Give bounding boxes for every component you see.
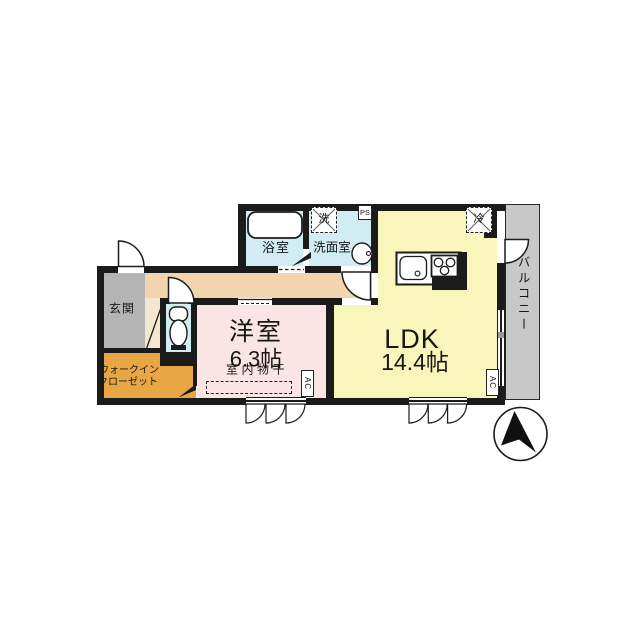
window-arc [428, 404, 447, 423]
window-arc [409, 404, 428, 423]
wall [144, 266, 246, 273]
bathroom-area [246, 211, 303, 266]
wall [306, 398, 409, 405]
wall [371, 204, 378, 273]
wall [272, 298, 342, 305]
balcony-label: バルコニー [515, 255, 528, 333]
walk-in-closet-label-2: クローゼット [98, 378, 158, 389]
hallway-area [145, 273, 372, 298]
entrance-step-area [145, 298, 160, 352]
wall [326, 305, 334, 398]
window-western-room [246, 397, 306, 405]
wall [193, 366, 197, 386]
floor-plan: PS AC AC [0, 0, 640, 640]
fridge-label: 冷 [474, 214, 485, 226]
window-arc [448, 404, 467, 423]
air-con-label: AC [488, 376, 497, 389]
window-arc [286, 404, 305, 423]
balcony-door-opening [497, 238, 505, 263]
indoor-drying-box [206, 381, 292, 394]
wall [238, 204, 246, 273]
walk-in-closet-label-1: ウォークイン [99, 366, 159, 377]
wall [97, 348, 162, 353]
ldk-size-label: 14.4帖 [381, 350, 449, 374]
pipe-space-box: PS [358, 205, 372, 220]
wall-slot [498, 211, 505, 238]
wall [97, 398, 246, 405]
wall [160, 352, 197, 366]
washer-label: 洗 [319, 214, 330, 226]
wall [371, 298, 378, 305]
indoor-drying-label: 室内物干 [226, 364, 288, 377]
window-ldk [409, 397, 467, 405]
western-room-label: 洋室 [229, 319, 283, 345]
compass-circle [494, 408, 547, 461]
wall [197, 298, 238, 305]
air-con-label: AC [303, 377, 312, 390]
wall [303, 211, 309, 249]
wall [188, 298, 191, 304]
wall [467, 398, 505, 405]
bathroom-label: 浴室 [262, 241, 290, 255]
pipe-space-label: PS [360, 208, 370, 217]
air-con-box-western: AC [301, 370, 314, 397]
wall [238, 266, 278, 273]
wall [305, 266, 341, 273]
entrance-door-arc [119, 241, 145, 267]
entrance-label: 玄関 [109, 303, 135, 316]
air-con-box-ldk: AC [486, 369, 499, 396]
toilet-area [166, 304, 191, 352]
wall [497, 263, 505, 310]
window-arc [266, 404, 285, 423]
window-arc [246, 404, 265, 423]
compass-north-arrow [501, 411, 536, 453]
wall [166, 298, 170, 304]
washroom-label: 洗面室 [313, 241, 351, 254]
